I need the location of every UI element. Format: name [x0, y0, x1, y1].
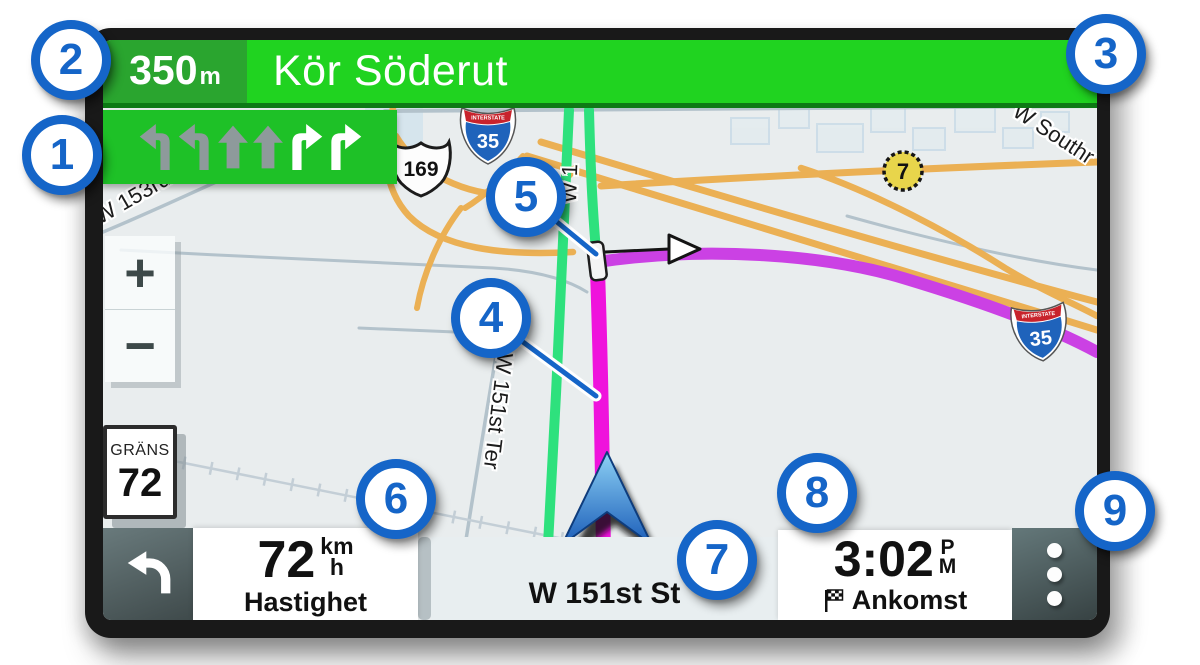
checkered-flag-icon [823, 589, 845, 613]
lane-arrow-right-turn-active-icon [287, 124, 323, 170]
current-street-name: W 151st St [529, 577, 681, 611]
lane-arrow-right-turn-active-icon [326, 124, 362, 170]
zoom-in-button[interactable]: + [105, 236, 175, 309]
vertical-dots-menu-icon [1047, 567, 1062, 582]
more-options-menu-button[interactable] [1012, 528, 1097, 620]
navigation-screen: 169 INTERSTATE 35 INTERSTATE 35 [103, 40, 1097, 620]
speed-data-field[interactable]: 72 km h Hastighet [193, 528, 418, 620]
svg-text:35: 35 [477, 131, 499, 153]
interstate-35-shield-right: INTERSTATE 35 [1010, 302, 1070, 363]
navigation-banner[interactable]: 350 m Kör Söderut [103, 40, 1097, 108]
lane-arrow-left-turn-icon [178, 124, 214, 170]
arrival-meridiem-m: M [939, 557, 957, 576]
svg-text:35: 35 [1029, 327, 1053, 351]
callout-7: 7 [677, 520, 757, 600]
callout-6: 6 [356, 459, 436, 539]
map-zoom-controls: + − [105, 236, 175, 382]
interstate-35-shield-top: INTERSTATE 35 [461, 108, 516, 164]
speed-unit-h: h [330, 557, 344, 578]
callout-9: 9 [1075, 471, 1155, 551]
turn-instruction-text: Kör Söderut [247, 40, 1097, 103]
lane-arrow-left-turn-icon [139, 124, 175, 170]
speed-limit-title: GRÄNS [110, 442, 169, 460]
turn-distance: 350 m [103, 40, 247, 103]
back-arrow-icon [121, 546, 175, 602]
gps-device-frame: 169 INTERSTATE 35 INTERSTATE 35 [85, 28, 1110, 638]
svg-text:169: 169 [403, 158, 438, 181]
turn-distance-value: 350 [129, 50, 197, 91]
callout-2: 2 [31, 20, 111, 100]
back-button[interactable] [103, 528, 193, 620]
arrival-meridiem: P M [939, 538, 957, 577]
screenshot-page: 169 INTERSTATE 35 INTERSTATE 35 [0, 0, 1200, 665]
lane-guidance-panel [103, 110, 397, 184]
speed-field-label: Hastighet [244, 587, 367, 618]
arrival-time: 3:02 [834, 534, 934, 584]
arrival-data-field[interactable]: 3:02 P M Ankomst [778, 530, 1012, 620]
turn-distance-unit: m [200, 63, 221, 91]
lane-arrow-straight-icon [252, 124, 284, 170]
lane-arrow-straight-icon [217, 124, 249, 170]
callout-8: 8 [777, 453, 857, 533]
vertical-dots-menu-icon [1047, 543, 1062, 558]
svg-text:7: 7 [897, 159, 909, 184]
county-road-7-badge: 7 [884, 152, 922, 190]
speed-value: 72 [257, 534, 315, 586]
us-route-169-shield: 169 [392, 142, 451, 196]
speed-limit-value: 72 [118, 463, 163, 503]
callout-5: 5 [486, 157, 566, 237]
svg-text:INTERSTATE: INTERSTATE [471, 116, 505, 122]
field-divider [418, 537, 431, 620]
callout-1: 1 [22, 115, 102, 195]
speed-limit-sign: GRÄNS 72 [103, 425, 177, 519]
speed-unit: km h [320, 536, 353, 578]
callout-3: 3 [1066, 14, 1146, 94]
vertical-dots-menu-icon [1047, 591, 1062, 606]
callout-4: 4 [451, 278, 531, 358]
zoom-out-button[interactable]: − [105, 309, 175, 382]
arrival-field-label: Ankomst [852, 585, 968, 616]
